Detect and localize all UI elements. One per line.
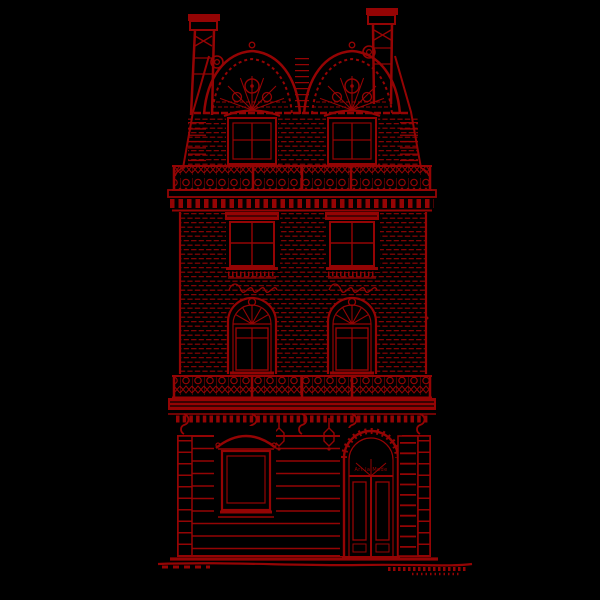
sketchy-ground-stroke: [158, 563, 472, 565]
upper-window-right: [325, 212, 380, 278]
entrance-door: Art la Mode: [340, 428, 402, 558]
arched-window-right: [328, 298, 376, 374]
stray-ink-dot: [426, 317, 429, 320]
door-sign: Art la Mode: [354, 467, 387, 473]
brick-wall: [180, 212, 426, 374]
roof-dome-right: [304, 42, 400, 114]
attic-window-right: [324, 111, 380, 167]
upper-window-left: [225, 212, 280, 278]
balcony-slab: [168, 190, 436, 197]
canvas: Art la Mode: [0, 0, 600, 600]
upper-balcony: [168, 166, 436, 211]
roof-dome-left: [204, 42, 300, 114]
attic-window-left: [224, 111, 280, 167]
pilaster-left: [178, 436, 192, 556]
main-facade: [180, 212, 429, 374]
attic-floor: [188, 111, 418, 167]
pilaster-right: [418, 436, 430, 556]
building-illustration: Art la Mode: [0, 0, 600, 600]
lower-balcony: [172, 376, 432, 398]
ground-line: [158, 559, 472, 574]
pilaster-ladder: [398, 436, 418, 556]
shop-window: [214, 426, 276, 518]
ground-floor: Art la Mode: [178, 426, 430, 558]
arched-window-left: [228, 298, 276, 374]
